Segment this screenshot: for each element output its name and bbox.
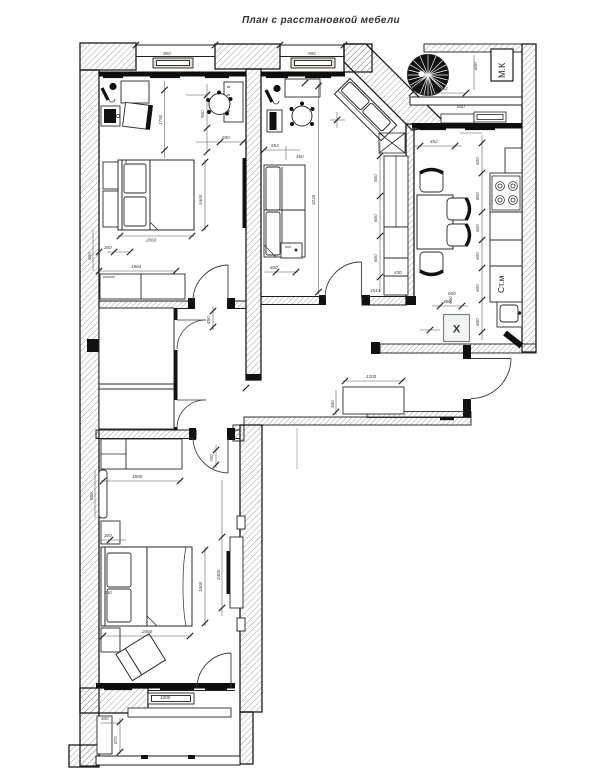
svg-text:М.К: М.К (497, 62, 507, 78)
svg-text:1000: 1000 (160, 695, 171, 700)
svg-text:1600: 1600 (198, 581, 203, 592)
svg-text:600: 600 (448, 296, 453, 304)
svg-text:600: 600 (475, 284, 480, 292)
svg-text:150: 150 (104, 590, 112, 595)
svg-text:600: 600 (448, 291, 456, 296)
svg-text:450: 450 (206, 316, 211, 324)
svg-text:500: 500 (373, 174, 378, 182)
svg-text:430: 430 (394, 270, 402, 275)
svg-text:870: 870 (113, 736, 118, 744)
svg-text:2400: 2400 (216, 569, 221, 581)
svg-text:400: 400 (101, 716, 109, 721)
svg-text:600: 600 (373, 254, 378, 262)
svg-text:1864: 1864 (131, 264, 142, 269)
svg-text:900: 900 (163, 51, 171, 56)
svg-text:900: 900 (308, 51, 316, 56)
svg-text:450: 450 (296, 154, 304, 159)
svg-text:План с расстановкой мебели: План с расстановкой мебели (242, 14, 400, 26)
svg-text:2060: 2060 (141, 629, 153, 634)
svg-text:600: 600 (270, 265, 278, 270)
svg-text:900: 900 (200, 110, 205, 118)
svg-text:1800: 1800 (132, 474, 143, 479)
svg-text:700: 700 (209, 454, 214, 462)
svg-text:600: 600 (222, 135, 230, 140)
svg-text:1200: 1200 (366, 374, 377, 379)
svg-text:800: 800 (475, 192, 480, 200)
svg-text:600: 600 (475, 157, 480, 165)
svg-text:1514: 1514 (370, 288, 381, 293)
svg-text:452: 452 (430, 139, 438, 144)
svg-text:1750: 1750 (158, 114, 163, 125)
svg-text:600: 600 (475, 318, 480, 326)
svg-text:600: 600 (457, 104, 465, 109)
svg-text:600: 600 (87, 252, 92, 260)
svg-text:1600: 1600 (198, 194, 203, 205)
svg-text:450: 450 (330, 400, 335, 408)
svg-text:600: 600 (475, 252, 480, 260)
svg-text:3236: 3236 (311, 194, 316, 205)
svg-text:X: X (453, 324, 461, 336)
svg-text:2060: 2060 (145, 238, 157, 243)
svg-text:850: 850 (89, 492, 94, 500)
svg-text:552: 552 (271, 143, 279, 148)
svg-text:952: 952 (440, 86, 448, 91)
svg-text:300: 300 (104, 533, 112, 538)
svg-text:600: 600 (475, 224, 480, 232)
svg-text:300: 300 (104, 245, 112, 250)
svg-text:Ст.м: Ст.м (496, 276, 506, 293)
svg-text:600: 600 (373, 214, 378, 222)
